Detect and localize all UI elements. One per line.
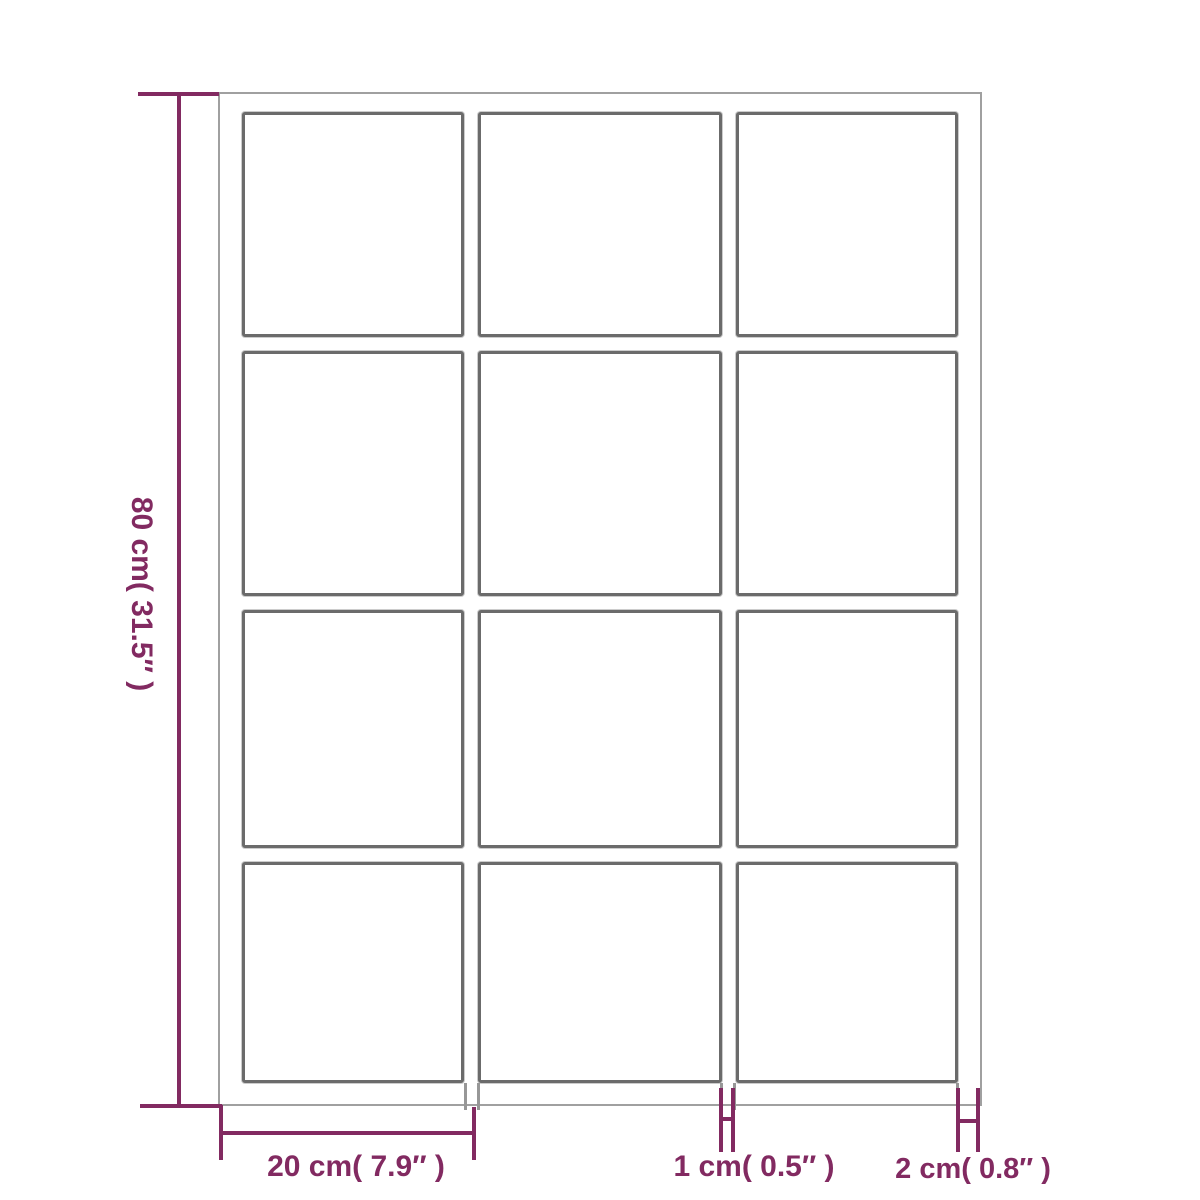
pane-grid xyxy=(242,112,958,1083)
frame-thickness-crossbar xyxy=(956,1119,980,1123)
pane-width-dimension-label: 20 cm( 7.9″ ) xyxy=(267,1150,445,1184)
pane xyxy=(736,351,958,596)
height-dimension-bottom-tick xyxy=(140,1104,222,1108)
pane-width-left-tick xyxy=(219,1105,223,1160)
height-dimension-line xyxy=(177,92,181,1108)
pane xyxy=(242,112,464,337)
pane xyxy=(242,351,464,596)
pane xyxy=(478,112,722,337)
pane xyxy=(478,610,722,848)
dimension-diagram: 80 cm( 31.5″ ) 20 cm( 7.9″ ) 1 cm( 0.5″ … xyxy=(0,0,1200,1200)
divider-width-dimension-label: 1 cm( 0.5″ ) xyxy=(673,1150,834,1184)
pane xyxy=(242,862,464,1083)
extension-line xyxy=(477,1083,480,1110)
divider-width-crossbar xyxy=(719,1117,735,1121)
extension-line xyxy=(464,1083,467,1110)
height-dimension-top-tick xyxy=(138,92,219,96)
pane-width-dimension-line xyxy=(221,1131,476,1135)
pane xyxy=(478,351,722,596)
frame-thickness-dimension-label: 2 cm( 0.8″ ) xyxy=(895,1153,1051,1186)
pane xyxy=(736,112,958,337)
pane xyxy=(478,862,722,1083)
pane xyxy=(242,610,464,848)
pane-width-right-tick xyxy=(472,1107,476,1160)
pane xyxy=(736,610,958,848)
height-dimension-label: 80 cm( 31.5″ ) xyxy=(124,497,158,691)
pane xyxy=(736,862,958,1083)
